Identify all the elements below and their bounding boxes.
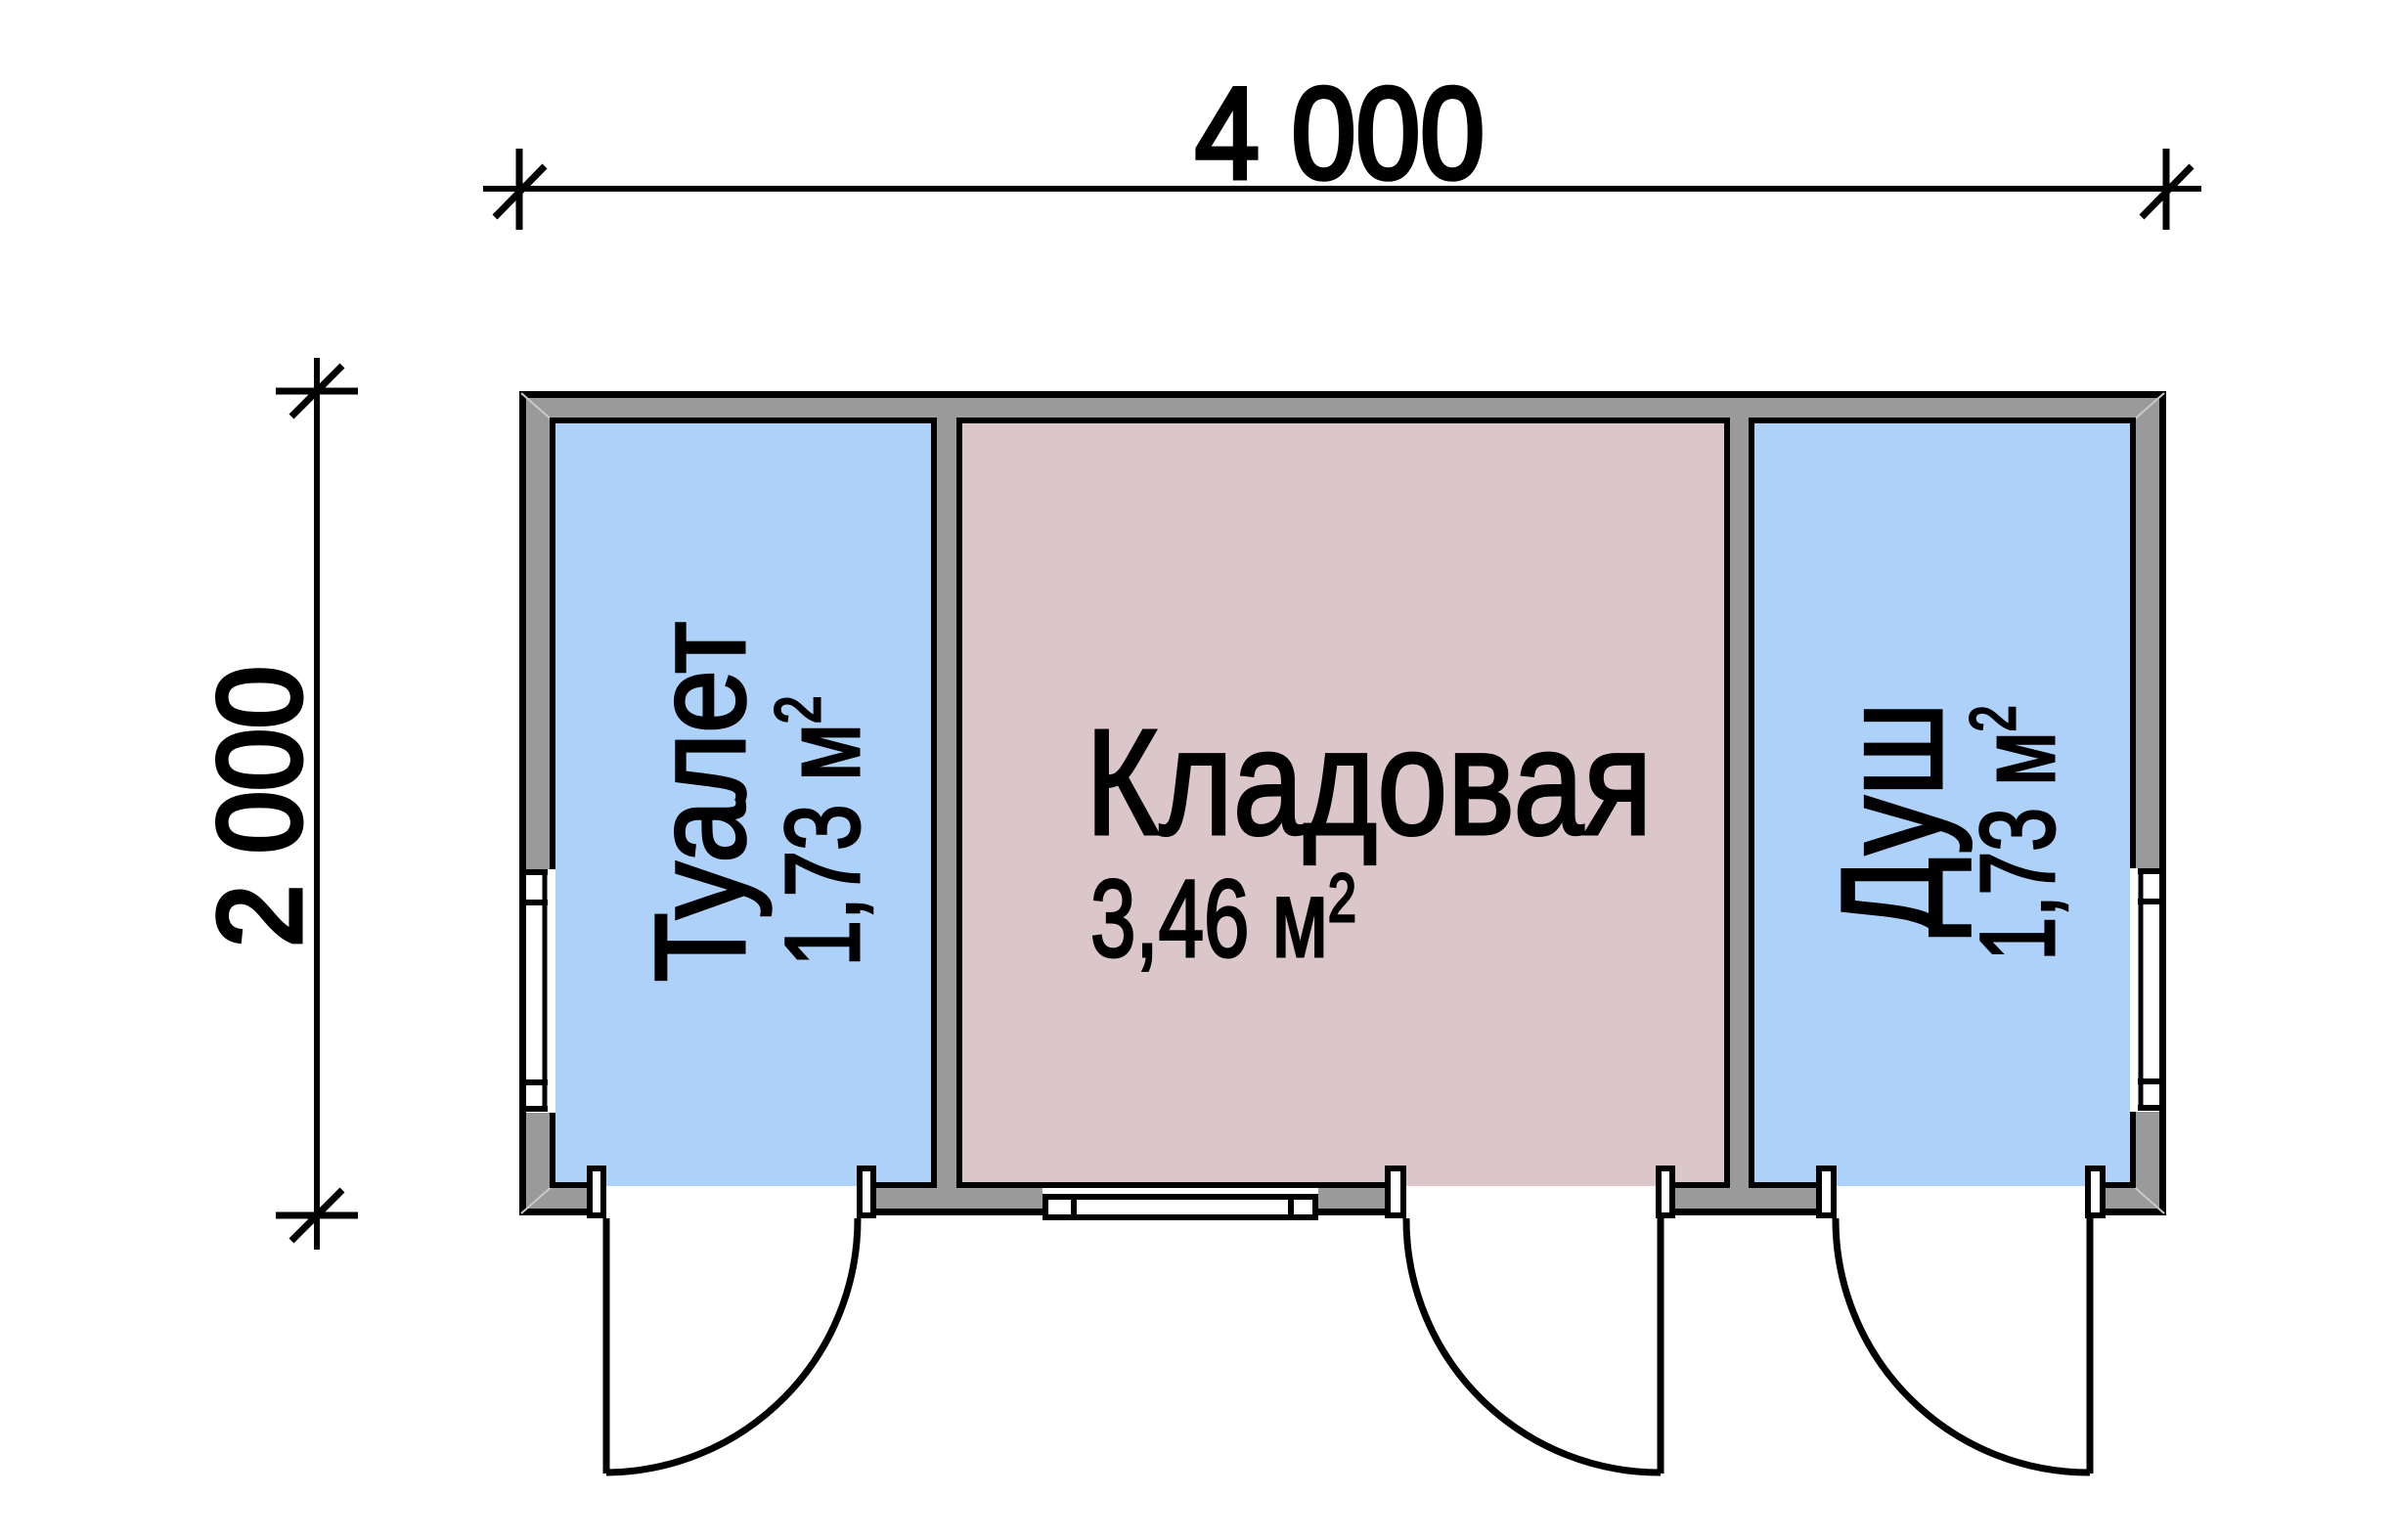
svg-text:3,46 м2: 3,46 м2 (1090, 858, 1356, 980)
svg-text:2 000: 2 000 (194, 666, 326, 947)
svg-text:Кладовая: Кладовая (1086, 698, 1652, 866)
svg-text:4 000: 4 000 (1195, 61, 1485, 206)
svg-text:Душ: Душ (1812, 702, 1972, 937)
svg-text:Туалет: Туалет (630, 622, 773, 983)
svg-text:1,73 м2: 1,73 м2 (1958, 705, 2077, 960)
svg-text:1,73 м2: 1,73 м2 (763, 696, 881, 967)
